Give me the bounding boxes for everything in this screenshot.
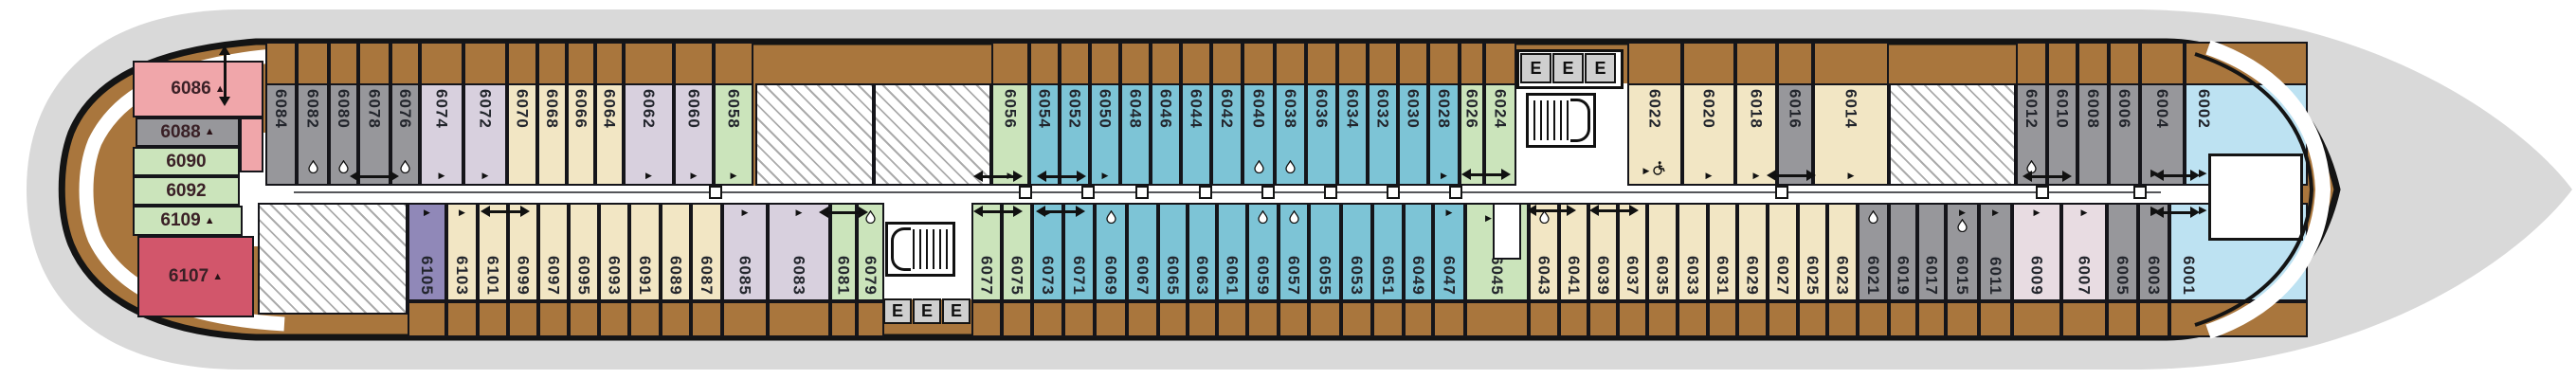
- corridor-door: [1135, 186, 1149, 199]
- corridor-door: [1081, 186, 1095, 199]
- elevator[interactable]: E: [942, 298, 971, 324]
- cabin-6021[interactable]: 6021: [1858, 203, 1889, 301]
- cabin-balcony: [1627, 42, 1682, 85]
- cabin-number: 6006: [2116, 89, 2132, 129]
- cabin-6078[interactable]: 6078: [358, 83, 390, 186]
- cabin-icons: ▶: [1848, 171, 1855, 180]
- cabin-number: 6068: [544, 89, 560, 129]
- cabin-number: 6080: [336, 89, 352, 129]
- cabin-number: 6049: [1410, 256, 1426, 296]
- cabin-6063[interactable]: 6063: [1188, 203, 1217, 301]
- cabin-number: 6107▲: [169, 266, 223, 287]
- cabin-6085[interactable]: ▶6085: [722, 203, 768, 301]
- cabin-balcony: [1827, 301, 1858, 337]
- elevator[interactable]: E: [1552, 53, 1584, 83]
- cabin-6043[interactable]: 6043: [1529, 203, 1559, 301]
- cabin-number: 6067: [1134, 256, 1151, 296]
- cabin-balcony: [1247, 301, 1279, 337]
- door-direction-icon: ▶: [2199, 169, 2206, 179]
- cabin-number: 6023: [1835, 256, 1851, 296]
- door-direction-icon: ▶: [1753, 171, 1760, 180]
- cabin-6059[interactable]: 6059: [1247, 203, 1279, 301]
- shower-icon: [1254, 160, 1264, 178]
- door-direction-icon: ▶: [1706, 171, 1713, 180]
- cabin-balcony: [1768, 301, 1798, 337]
- corridor-door: [2036, 186, 2049, 199]
- service-notch: [1493, 203, 1521, 260]
- cabin-number: 6033: [1685, 256, 1701, 296]
- cabin-number: 6090: [166, 152, 206, 172]
- cabin-6044[interactable]: 6044: [1181, 83, 1211, 186]
- cabin-balcony: [1433, 301, 1465, 337]
- cabin-balcony: [1813, 42, 1889, 85]
- door-direction-icon: ▶: [1848, 171, 1855, 180]
- cabin-6060[interactable]: 6060▶: [674, 83, 714, 186]
- cabin-balcony: [1917, 301, 1946, 337]
- cabin-6007[interactable]: ▶6007: [2061, 203, 2107, 301]
- cabin-number: 6030: [1406, 89, 1422, 129]
- cabin-number: 6021: [1865, 256, 1881, 296]
- cabin-balcony: [463, 42, 507, 85]
- double-arrow-icon: [1775, 174, 1807, 177]
- cabin-balcony: [1181, 42, 1211, 85]
- cabin-number: 6035: [1655, 256, 1671, 296]
- corridor-door: [1324, 186, 1337, 199]
- cabin-6053[interactable]: 6053: [1341, 203, 1372, 301]
- cabin-balcony: [1404, 301, 1433, 337]
- staircase[interactable]: [885, 222, 955, 277]
- cabin-number: 6075: [1009, 256, 1025, 296]
- cabin-number: 6060: [686, 89, 702, 129]
- cabin-balcony: [538, 301, 569, 337]
- cabin-number: 6087: [698, 256, 715, 296]
- cabin-number: 6054: [1037, 89, 1053, 129]
- cabin-number: 6047: [1442, 256, 1458, 296]
- cabin-6067[interactable]: 6067: [1127, 203, 1158, 301]
- cabin-6071[interactable]: 6071: [1063, 203, 1095, 301]
- stair-turn: [1570, 99, 1590, 142]
- cabin-balcony: [2109, 42, 2140, 85]
- cabin-number: 6103: [454, 256, 470, 296]
- cabin-balcony: [1002, 301, 1032, 337]
- corridor-door: [1261, 186, 1275, 199]
- cabin-6086-extension: [240, 117, 263, 172]
- cabin-icons: ▶: [439, 171, 445, 180]
- cabin-number: 6009: [2029, 256, 2045, 296]
- cabin-balcony: [1682, 42, 1735, 85]
- cabin-number: 6084: [273, 89, 289, 129]
- cabin-number: 6071: [1071, 256, 1087, 296]
- cabin-6036[interactable]: 6036: [1306, 83, 1337, 186]
- cabin-icons: ▶: [1753, 171, 1760, 180]
- cabin-6019[interactable]: 6019: [1889, 203, 1917, 301]
- cabin-6008[interactable]: 6008: [2077, 83, 2109, 186]
- cabin-6005[interactable]: 6005: [2107, 203, 2138, 301]
- double-arrow-icon: [2163, 211, 2191, 214]
- cabin-number: 6085: [737, 256, 753, 296]
- cabin-icons: ▶: [424, 208, 430, 217]
- crew-area-hatched: [755, 83, 874, 186]
- cabin-balcony: [1060, 42, 1090, 85]
- cabin-number: 6072: [478, 89, 494, 129]
- cabin-balcony: [595, 42, 624, 85]
- cabin-number: 6061: [1225, 256, 1241, 296]
- cabin-number: 6039: [1595, 256, 1611, 296]
- cabin-6020[interactable]: 6020▶: [1682, 83, 1735, 186]
- cabin-number: 6028: [1436, 89, 1452, 129]
- cabin-number: 6011: [1987, 257, 2004, 296]
- up-direction-icon: ▲: [205, 216, 215, 226]
- cabin-balcony: [2077, 42, 2109, 85]
- cabin-6011[interactable]: ▶6011: [1979, 203, 2012, 301]
- cabin-balcony: [1063, 301, 1095, 337]
- cabin-number: 6058: [726, 89, 742, 129]
- cabin-balcony: [1428, 42, 1460, 85]
- cabin-6047[interactable]: ▶6047: [1433, 203, 1465, 301]
- cabin-number: 6034: [1345, 89, 1361, 129]
- cabin-number: 6048: [1128, 89, 1144, 129]
- cabin-number: 6018: [1749, 89, 1765, 129]
- shower-icon: [338, 160, 349, 178]
- cabin-balcony: [2138, 301, 2169, 337]
- door-direction-icon: ▶: [2199, 206, 2206, 216]
- cabin-balcony: [2012, 301, 2061, 337]
- cabin-balcony: [329, 42, 358, 85]
- corridor-door: [1449, 186, 1462, 199]
- cabin-number: 6027: [1775, 256, 1791, 296]
- cabin-balcony: [1465, 301, 1529, 337]
- cabin-balcony: [971, 301, 1002, 337]
- cabin-balcony: [857, 301, 884, 337]
- double-arrow-icon: [2031, 175, 2063, 178]
- cabin-icons: ▶: [645, 171, 652, 180]
- cabin-6087[interactable]: 6087: [691, 203, 722, 301]
- cabin-balcony: [297, 42, 329, 85]
- cabin-number: 6062: [641, 89, 657, 129]
- cabin-icons: ▶: [742, 208, 749, 217]
- cabin-6056[interactable]: 6056▶: [991, 83, 1029, 186]
- cabin-icons: ▶: [1643, 161, 1667, 180]
- cabin-balcony: [1120, 42, 1151, 85]
- cabin-6072[interactable]: 6072▶: [463, 83, 507, 186]
- cabin-icons: ▶: [459, 208, 465, 217]
- cabin-number: 6083: [791, 256, 807, 296]
- cabin-6027[interactable]: 6027: [1768, 203, 1798, 301]
- cabin-balcony: [1618, 301, 1647, 337]
- cabin-icons: ▶: [1992, 208, 1999, 217]
- cabin-balcony: [1979, 301, 2012, 337]
- cabin-number: 6065: [1165, 256, 1181, 296]
- cabin-number: 6017: [1924, 256, 1940, 296]
- cabin-balcony: [830, 301, 857, 337]
- deck-plan: Launderette 608460826080607860766074▶607…: [0, 0, 2576, 379]
- cabin-balcony: [674, 42, 714, 85]
- corridor: [237, 186, 2208, 203]
- double-arrow-icon: [489, 210, 521, 213]
- cabin-number: 6031: [1714, 256, 1731, 296]
- cabin-6081[interactable]: 6081: [830, 203, 857, 301]
- door-direction-icon: ▶: [2034, 208, 2041, 217]
- cabin-6068[interactable]: 6068: [537, 83, 567, 186]
- cabin-number: 6029: [1745, 256, 1761, 296]
- staircase[interactable]: [1526, 93, 1596, 148]
- cabin-icons: ▶: [2034, 208, 2041, 217]
- double-arrow-icon: [1470, 173, 1502, 176]
- cabin-6084[interactable]: 6084: [265, 83, 297, 186]
- shower-icon: [1957, 219, 1968, 237]
- cabin-6095[interactable]: 6095: [569, 203, 599, 301]
- cabin-number: 6036: [1314, 89, 1330, 129]
- cabin-number: 6024: [1493, 89, 1509, 129]
- double-arrow-icon: [982, 210, 1014, 213]
- cabin-6017[interactable]: 6017: [1917, 203, 1946, 301]
- cabin-balcony: [599, 301, 629, 337]
- cabin-icons: ▶: [1441, 171, 1447, 180]
- cabin-icons: ▶: [1446, 208, 1453, 217]
- cabin-6101[interactable]: 6101: [478, 203, 508, 301]
- cabin-balcony: [1708, 301, 1737, 337]
- cabin-balcony: [1647, 301, 1678, 337]
- cabin-6073[interactable]: ▶6073: [1032, 203, 1063, 301]
- cabin-6015[interactable]: ▶6015: [1946, 203, 1979, 301]
- cabin-6035[interactable]: 6035: [1647, 203, 1678, 301]
- cabin-number: 6003: [2146, 256, 2162, 296]
- cabin-balcony: [1217, 301, 1247, 337]
- door-direction-icon: ▶: [691, 171, 698, 180]
- door-direction-icon: ▶: [2081, 208, 2088, 217]
- cabin-balcony: [1798, 301, 1827, 337]
- cabin-6077[interactable]: 6077: [971, 203, 1002, 301]
- cabin-balcony: [1306, 42, 1337, 85]
- cabin-6086[interactable]: 6086▲: [133, 61, 263, 117]
- cabin-6030[interactable]: 6030: [1398, 83, 1428, 186]
- cabin-number: 6052: [1067, 89, 1083, 129]
- shower-icon: [400, 160, 410, 178]
- cabin-number: 6082: [305, 89, 321, 129]
- cabin-6014[interactable]: 6014▶: [1813, 83, 1889, 186]
- cabin-6075[interactable]: 6075: [1002, 203, 1032, 301]
- cabin-number: 6014: [1843, 89, 1859, 129]
- door-direction-icon: ▶: [1643, 167, 1650, 175]
- cabin-6099[interactable]: 6099: [508, 203, 538, 301]
- cabin-balcony: [2140, 42, 2185, 85]
- corridor-door: [1199, 186, 1212, 199]
- elevator[interactable]: E: [913, 298, 941, 324]
- cabin-6088[interactable]: 6088▲: [136, 117, 240, 147]
- cabin-6050[interactable]: 6050▶: [1090, 83, 1120, 186]
- cabin-number: 6089: [668, 256, 684, 296]
- elevator[interactable]: E: [1520, 53, 1551, 83]
- cabin-6105[interactable]: ▶6105: [408, 203, 446, 301]
- cabin-number: 6037: [1624, 256, 1641, 296]
- cabin-6069[interactable]: 6069: [1095, 203, 1127, 301]
- cabin-balcony: [1889, 301, 1917, 337]
- cabin-6048[interactable]: 6048: [1120, 83, 1151, 186]
- cabin-6092[interactable]: 6092: [133, 176, 240, 206]
- cabin-number: 6097: [546, 256, 562, 296]
- cabin-number: 6056: [1003, 89, 1019, 129]
- cabin-icons: ▶: [691, 171, 698, 180]
- cabin-balcony: [1460, 42, 1484, 85]
- up-direction-icon: ▲: [212, 272, 223, 282]
- cabin-balcony: [1279, 301, 1309, 337]
- cabin-icons: ▶: [731, 171, 737, 180]
- cabin-balcony: [629, 301, 661, 337]
- cabin-6055[interactable]: 6055: [1309, 203, 1341, 301]
- cabin-6058[interactable]: 6058▶: [714, 83, 753, 186]
- elevator[interactable]: E: [1585, 53, 1616, 83]
- cabin-balcony: [2107, 301, 2138, 337]
- wheelchair-accessible-icon: [1652, 161, 1666, 180]
- cabin-icons: ▶: [1706, 171, 1713, 180]
- cabin-6103[interactable]: ▶6103: [446, 203, 478, 301]
- elevator[interactable]: E: [883, 298, 912, 324]
- cabin-number: 6050: [1098, 89, 1114, 129]
- cabin-balcony: [624, 42, 674, 85]
- cabin-number: 6057: [1286, 256, 1302, 296]
- cabin-balcony: [1777, 42, 1813, 85]
- cabin-number: 6078: [367, 89, 383, 129]
- cabin-6024[interactable]: 6024: [1484, 83, 1516, 186]
- cabin-balcony: [1211, 42, 1243, 85]
- cabin-6082[interactable]: 6082: [297, 83, 329, 186]
- corridor-centerline: [294, 191, 2161, 193]
- cabin-icons: ▶: [1102, 171, 1109, 180]
- cabin-number: 6076: [397, 89, 413, 129]
- cabin-balcony: [691, 301, 722, 337]
- cabin-balcony: [446, 301, 478, 337]
- cabin-balcony: [537, 42, 567, 85]
- cabin-number: 6079: [862, 256, 879, 296]
- cabin-6025[interactable]: 6025: [1798, 203, 1827, 301]
- cabin-balcony: [1090, 42, 1120, 85]
- cabin-icons: ▶: [482, 171, 489, 180]
- cabin-balcony: [1032, 301, 1063, 337]
- corridor-door: [1775, 186, 1788, 199]
- cabin-number: 6059: [1255, 256, 1271, 296]
- door-direction-icon: ▶: [645, 171, 652, 180]
- cabin-balcony: [2016, 42, 2047, 85]
- cabin-6057[interactable]: 6057: [1279, 203, 1309, 301]
- door-direction-icon: ▶: [1992, 208, 1999, 217]
- cabin-number: 6012: [2023, 89, 2040, 129]
- cabin-balcony: [567, 42, 595, 85]
- cabin-balcony: [1559, 301, 1588, 337]
- cabin-number: 6044: [1188, 89, 1205, 129]
- cabin-icons: ▶: [796, 208, 803, 217]
- cabin-6062[interactable]: 6062▶: [624, 83, 674, 186]
- door-direction-icon: ▶: [439, 171, 445, 180]
- cabin-balcony: [1398, 42, 1428, 85]
- cabin-balcony: [722, 301, 768, 337]
- cabin-6070[interactable]: 6070: [507, 83, 537, 186]
- cabin-6006[interactable]: 6006: [2109, 83, 2140, 186]
- cabin-6093[interactable]: 6093: [599, 203, 629, 301]
- cabin-6074[interactable]: 6074▶: [420, 83, 463, 186]
- cabin-balcony: [408, 301, 446, 337]
- cabin-6028[interactable]: 6028▶: [1428, 83, 1460, 186]
- cabin-6051[interactable]: 6051: [1372, 203, 1404, 301]
- corridor-door: [709, 186, 722, 199]
- stair-steps: [1533, 100, 1569, 140]
- door-direction-icon: ▶: [1446, 208, 1453, 217]
- cabin-6037[interactable]: 6037: [1618, 203, 1647, 301]
- cabin-6107[interactable]: 6107▲: [137, 236, 254, 317]
- cabin-number: 6109▲: [160, 210, 214, 231]
- cabin-6042[interactable]: 6042: [1211, 83, 1243, 186]
- stair-steps: [913, 229, 948, 269]
- cabin-6089[interactable]: 6089: [661, 203, 691, 301]
- cabin-6061[interactable]: 6061: [1217, 203, 1247, 301]
- cabin-6034[interactable]: 6034: [1337, 83, 1368, 186]
- cabin-6046[interactable]: 6046: [1151, 83, 1181, 186]
- cabin-balcony: [1484, 42, 1516, 85]
- cabin-6091[interactable]: 6091: [629, 203, 661, 301]
- shower-icon: [1539, 210, 1550, 228]
- cabin-balcony: [1858, 301, 1889, 337]
- cabin-balcony: [1946, 301, 1979, 337]
- door-direction-icon: ▶: [1102, 171, 1109, 180]
- cabin-6033[interactable]: 6033: [1678, 203, 1708, 301]
- door-direction-icon: ▶: [1485, 214, 1492, 223]
- cabin-6039[interactable]: 6039: [1588, 203, 1618, 301]
- door-direction-icon: ▶: [731, 171, 737, 180]
- cabin-6109[interactable]: 6109▲: [133, 206, 243, 236]
- cabin-6009[interactable]: ▶6009: [2012, 203, 2061, 301]
- cabin-6049[interactable]: 6049: [1404, 203, 1433, 301]
- cabin-number: 6077: [979, 256, 995, 296]
- cabin-number: 6045: [1489, 256, 1505, 296]
- cabin-6097[interactable]: 6097: [538, 203, 569, 301]
- cabin-number: 6016: [1787, 89, 1804, 129]
- shower-icon: [1258, 210, 1268, 228]
- bow-vestibule: [2208, 153, 2303, 241]
- cabin-6066[interactable]: 6066: [567, 83, 595, 186]
- cabin-6031[interactable]: 6031: [1708, 203, 1737, 301]
- cabin-number: 6099: [516, 256, 532, 296]
- cabin-6022[interactable]: 6022▶: [1627, 83, 1682, 186]
- cabin-balcony: [569, 301, 599, 337]
- cabin-6038[interactable]: 6038: [1275, 83, 1306, 186]
- cabin-balcony: [420, 42, 463, 85]
- cabin-number: 6004: [2154, 89, 2170, 129]
- cabin-number: 6007: [2077, 256, 2093, 296]
- cabin-balcony: [1127, 301, 1158, 337]
- cabin-6064[interactable]: 6064: [595, 83, 624, 186]
- cabin-6032[interactable]: 6032: [1368, 83, 1398, 186]
- cabin-balcony: [2061, 301, 2107, 337]
- cabin-number: 6086▲: [171, 79, 225, 99]
- shower-icon: [308, 160, 318, 178]
- double-arrow-icon: [1598, 209, 1630, 212]
- cabin-balcony: [1275, 42, 1306, 85]
- cabin-number: 6051: [1380, 256, 1396, 296]
- cabin-6065[interactable]: 6065: [1158, 203, 1188, 301]
- cabin-6023[interactable]: 6023: [1827, 203, 1858, 301]
- shower-icon: [1106, 210, 1116, 228]
- cabin-number: 6026: [1464, 89, 1480, 129]
- door-direction-icon: ▶: [2150, 169, 2158, 179]
- cabin-6029[interactable]: 6029: [1737, 203, 1768, 301]
- cabin-number: 6042: [1219, 89, 1235, 129]
- cabin-balcony: [1158, 301, 1188, 337]
- cabin-6041[interactable]: 6041: [1559, 203, 1588, 301]
- cabin-6090[interactable]: 6090: [133, 147, 240, 176]
- cabin-icons: ▶: [2081, 208, 2088, 217]
- cabin-6040[interactable]: 6040: [1243, 83, 1275, 186]
- cabin-balcony: [1372, 301, 1404, 337]
- double-arrow-icon: [1045, 175, 1078, 178]
